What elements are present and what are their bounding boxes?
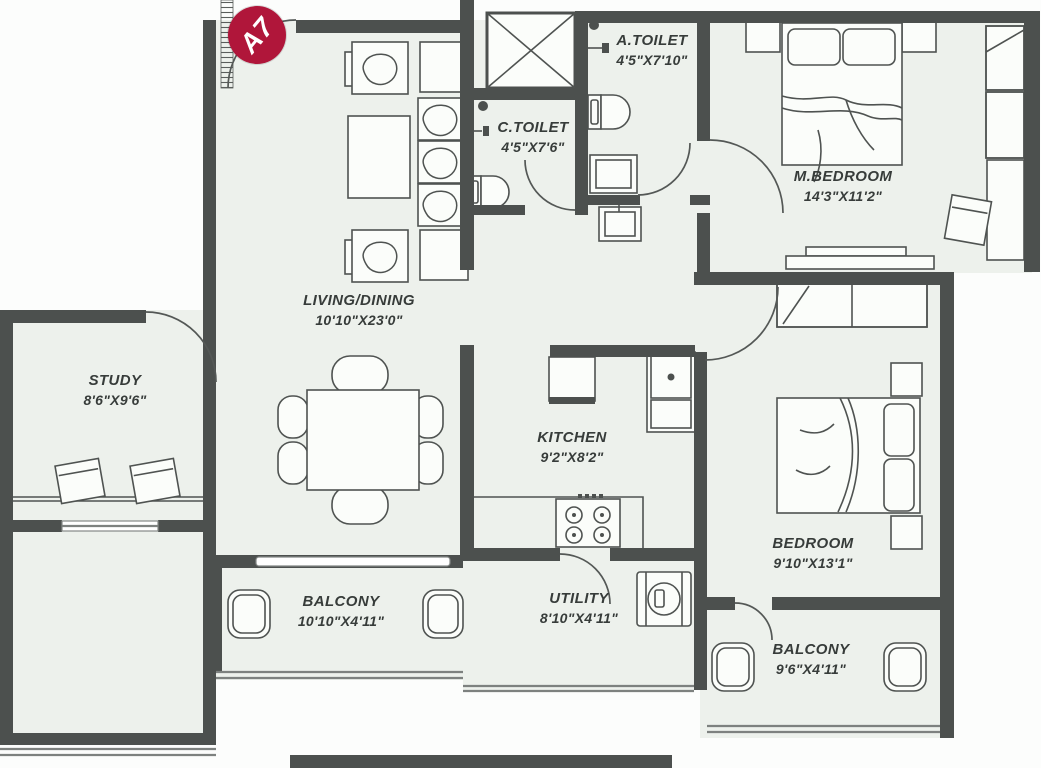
room-name: A.TOILET [616,31,687,51]
room-label-a-toilet: A.TOILET 4'5"X7'10" [616,31,687,69]
room-size: 4'5"X7'6" [497,138,568,156]
duct-shaft-icon [487,13,575,88]
floorplan-page: A7 A.TOILET 4'5"X7'10" C.TOILET 4'5"X7'6… [0,0,1041,768]
room-size: 9'10"X13'1" [772,554,853,572]
wardrobe-icon [986,26,1024,158]
room-label-balcony-left: BALCONY 10'10"X4'11" [298,592,384,630]
room-name: BEDROOM [772,534,853,554]
room-label-m-bedroom: M.BEDROOM 14'3"X11'2" [794,167,893,205]
room-label-utility: UTILITY 8'10"X4'11" [540,589,618,627]
room-name: STUDY [83,371,146,391]
room-size: 9'6"X4'11" [773,660,850,678]
sink-icon [647,352,695,432]
wardrobe-icon [777,282,927,327]
washing-machine-icon [637,572,691,626]
room-label-c-toilet: C.TOILET 4'5"X7'6" [497,118,568,156]
room-name: UTILITY [540,589,618,609]
room-name: BALCONY [773,640,850,660]
washbasin-icon [599,203,641,241]
floorplan-drawing [0,0,1041,768]
room-label-study: STUDY 8'6"X9'6" [83,371,146,409]
room-size: 9'2"X8'2" [537,448,606,466]
unit-badge: A7 [228,6,286,64]
room-label-living-dining: LIVING/DINING 10'10"X23'0" [303,291,415,329]
room-size: 14'3"X11'2" [794,187,893,205]
sofa-set-icon [345,42,468,282]
room-name: KITCHEN [537,428,606,448]
room-name: M.BEDROOM [794,167,893,187]
room-label-kitchen: KITCHEN 9'2"X8'2" [537,428,606,466]
room-name: LIVING/DINING [303,291,415,311]
fridge-icon [549,357,595,404]
room-size: 4'5"X7'10" [616,51,687,69]
room-name: C.TOILET [497,118,568,138]
room-label-balcony-right: BALCONY 9'6"X4'11" [773,640,850,678]
room-size: 8'6"X9'6" [83,391,146,409]
room-size: 8'10"X4'11" [540,609,618,627]
room-name: BALCONY [298,592,384,612]
room-label-bedroom: BEDROOM 9'10"X13'1" [772,534,853,572]
room-size: 10'10"X23'0" [303,311,415,329]
washbasin-icon [590,155,637,193]
unit-badge-label: A7 [233,11,280,59]
wc-icon [468,176,509,208]
room-size: 10'10"X4'11" [298,612,384,630]
wc-icon [588,95,630,129]
stove-icon [556,494,620,547]
